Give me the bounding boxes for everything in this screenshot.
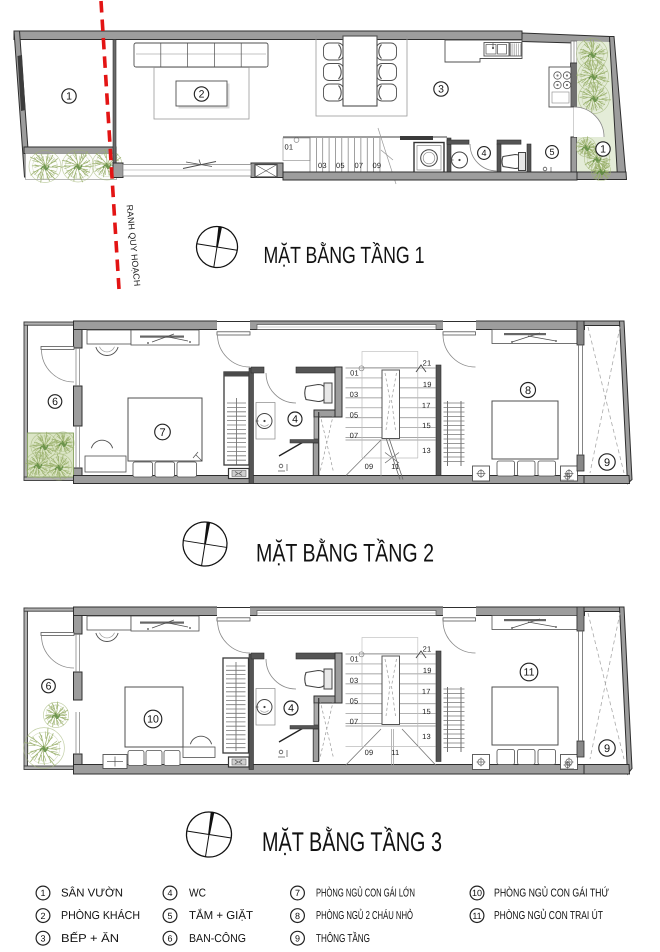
svg-text:MẶT BẰNG TẦNG 2: MẶT BẰNG TẦNG 2 [256,539,434,568]
svg-text:5: 5 [549,147,554,157]
svg-text:15: 15 [422,421,431,430]
svg-text:BẾP + ĂN: BẾP + ĂN [61,931,119,945]
svg-text:17: 17 [422,401,431,410]
svg-text:03: 03 [350,390,359,399]
svg-text:PHÒNG NGỦ CON GÁI THỨ: PHÒNG NGỦ CON GÁI THỨ [494,886,609,900]
svg-text:10: 10 [472,888,482,898]
svg-text:PHÒNG NGỦ CON GÁI LỚN: PHÒNG NGỦ CON GÁI LỚN [316,886,415,900]
svg-text:MẶT BẰNG TẦNG 3: MẶT BẰNG TẦNG 3 [262,826,442,857]
svg-text:21: 21 [423,645,432,654]
svg-text:10: 10 [147,714,159,726]
svg-text:TẮM + GIẶT: TẮM + GIẶT [189,908,253,922]
svg-text:05: 05 [336,161,345,170]
svg-text:09: 09 [373,161,382,170]
svg-text:03: 03 [350,676,359,685]
svg-text:01: 01 [350,655,359,664]
svg-text:THÔNG TẦNG: THÔNG TẦNG [316,931,370,945]
svg-text:6: 6 [167,933,172,943]
svg-text:05: 05 [350,697,359,706]
svg-text:SÂN VƯỜN: SÂN VƯỜN [61,886,123,900]
svg-text:2: 2 [40,911,45,921]
svg-text:17: 17 [422,687,431,696]
svg-text:09: 09 [365,748,374,757]
svg-text:19: 19 [423,380,432,389]
svg-text:09: 09 [365,462,374,471]
svg-text:8: 8 [295,911,300,921]
svg-text:11: 11 [391,748,399,757]
svg-text:6: 6 [52,396,58,408]
svg-text:PHÒNG NGỦ 2 CHÁU NHỎ: PHÒNG NGỦ 2 CHÁU NHỎ [316,908,413,922]
svg-text:4: 4 [481,148,486,158]
svg-text:9: 9 [295,933,300,943]
svg-text:3: 3 [40,933,45,943]
svg-text:11: 11 [524,667,535,679]
svg-text:3: 3 [438,84,444,96]
svg-text:4: 4 [167,888,172,898]
svg-text:4: 4 [288,703,294,715]
svg-text:21: 21 [423,359,432,368]
svg-text:8: 8 [525,385,531,397]
svg-text:11: 11 [391,462,399,471]
svg-text:01: 01 [350,369,359,378]
svg-text:05: 05 [350,411,359,420]
svg-text:1: 1 [40,888,45,898]
svg-text:WC: WC [189,888,206,900]
svg-text:01: 01 [285,143,294,152]
svg-text:6: 6 [46,681,52,693]
svg-text:07: 07 [350,717,359,726]
svg-text:07: 07 [355,161,364,170]
svg-text:9: 9 [604,743,610,755]
svg-text:7: 7 [295,888,300,898]
svg-text:PHÒNG NGỦ CON TRAI ÚT: PHÒNG NGỦ CON TRAI ÚT [494,908,603,922]
svg-text:07: 07 [350,431,359,440]
svg-text:19: 19 [423,666,432,675]
svg-text:9: 9 [604,457,610,469]
svg-text:5: 5 [167,911,172,921]
svg-text:BAN-CÔNG: BAN-CÔNG [189,931,246,945]
svg-text:13: 13 [422,446,431,455]
svg-text:2: 2 [199,89,205,101]
svg-text:15: 15 [422,707,431,716]
svg-text:7: 7 [159,427,165,439]
svg-text:13: 13 [422,732,431,741]
svg-text:MẶT BẰNG TẦNG 1: MẶT BẰNG TẦNG 1 [264,241,425,268]
svg-text:4: 4 [292,414,298,426]
svg-text:PHÒNG KHÁCH: PHÒNG KHÁCH [61,909,140,922]
svg-text:1: 1 [600,144,606,156]
svg-text:1: 1 [66,91,72,103]
svg-text:03: 03 [318,161,327,170]
svg-text:11: 11 [472,911,481,921]
